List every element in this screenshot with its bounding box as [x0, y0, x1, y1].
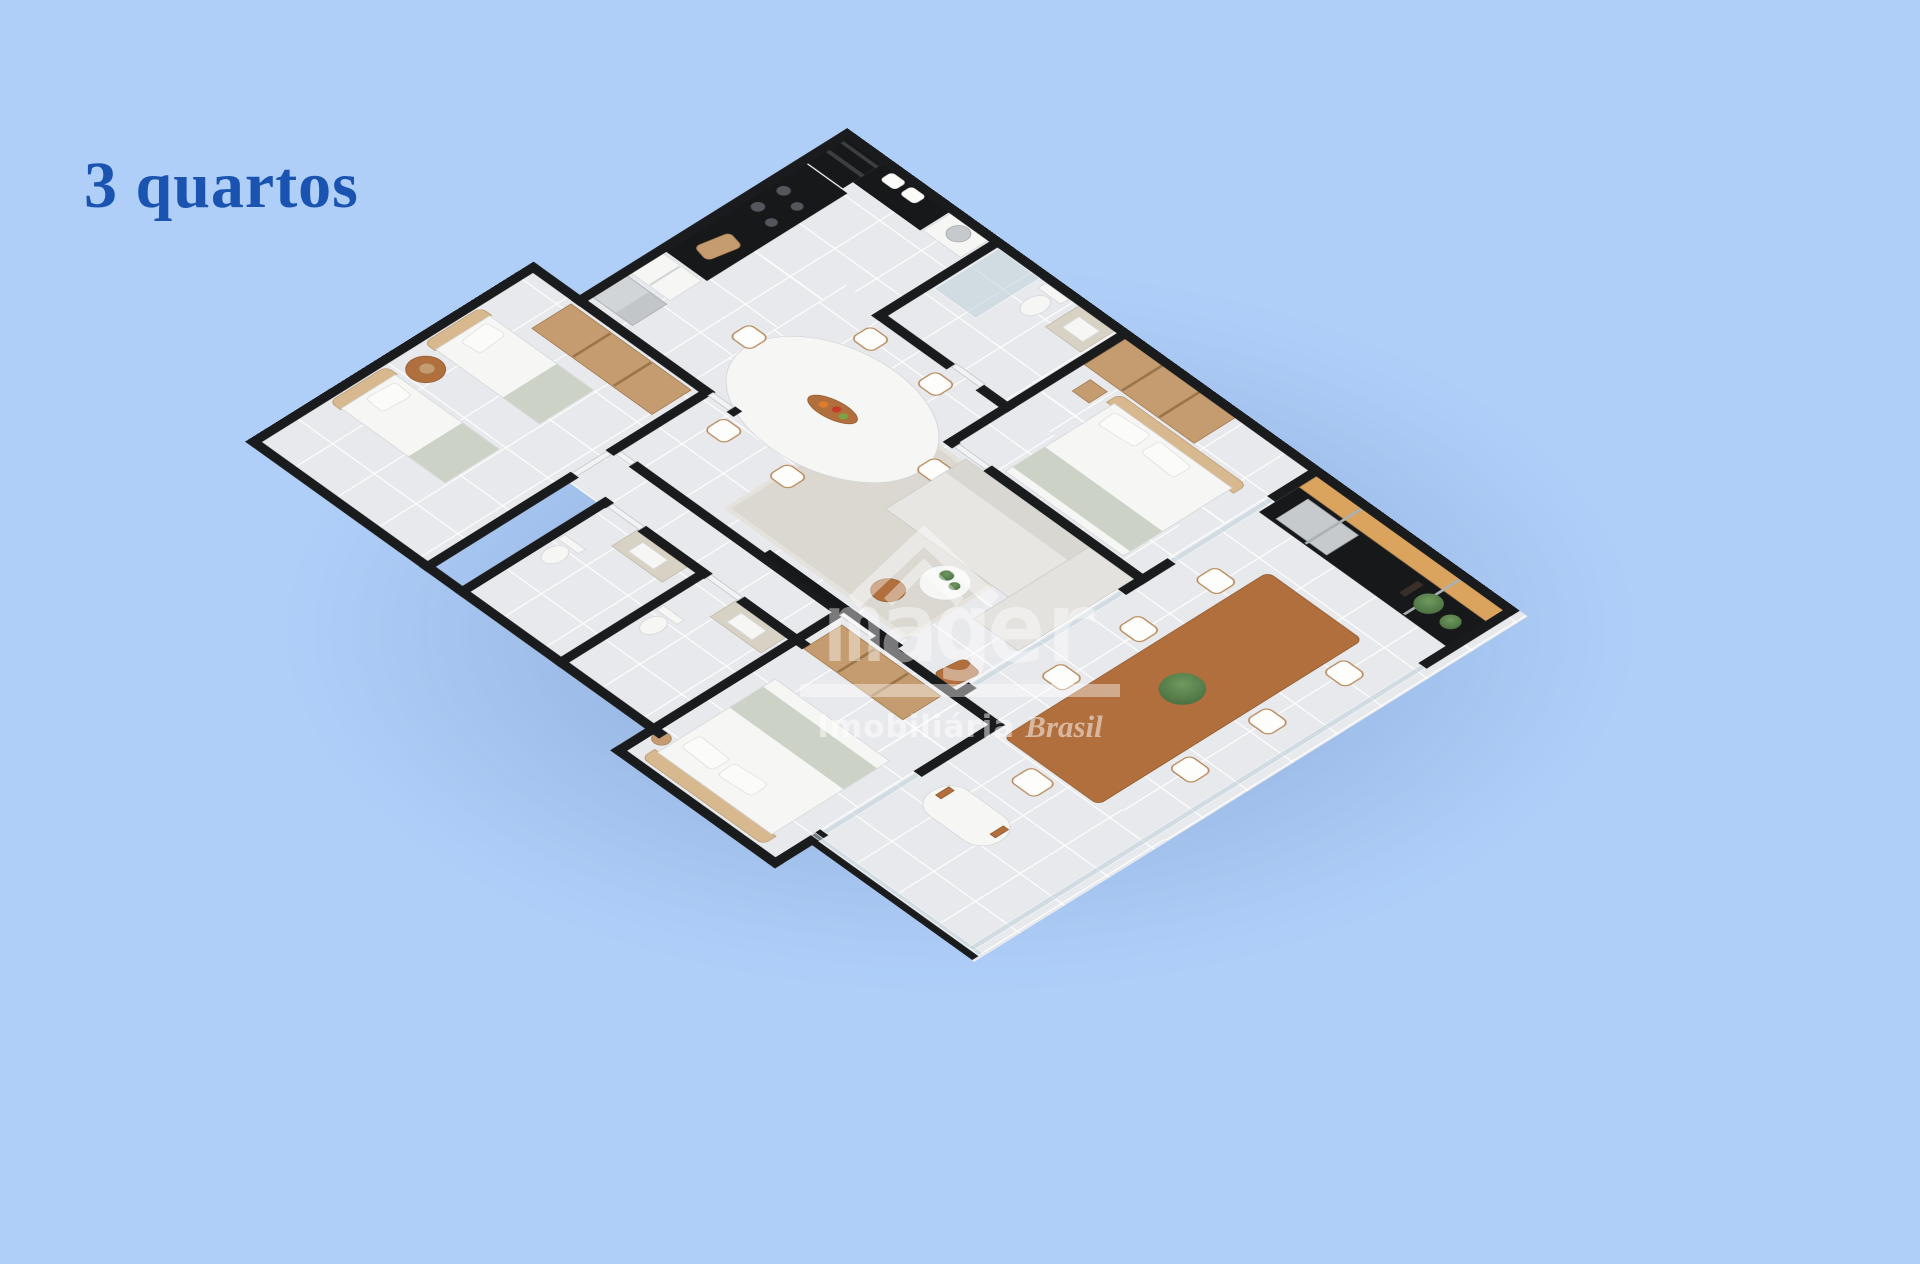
- wall: [914, 719, 1005, 777]
- wall: [454, 497, 614, 597]
- wall: [552, 567, 712, 667]
- wall: [571, 128, 855, 306]
- page-title: 3 quartos: [84, 148, 359, 224]
- floorplan-scene: 3 quartos: [0, 0, 1920, 1264]
